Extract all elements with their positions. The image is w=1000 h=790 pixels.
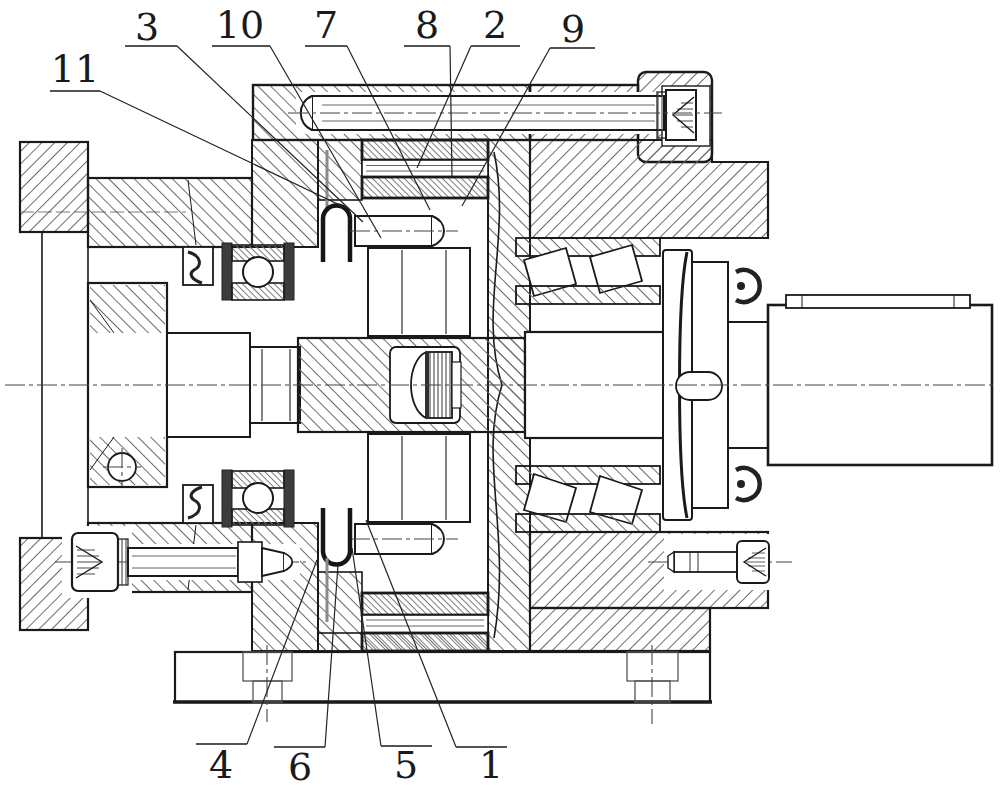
callout-number: 1 (479, 743, 503, 787)
left-end-cap-top (20, 142, 88, 232)
callout-number: 8 (415, 3, 439, 47)
taper-bearing-outer-race (516, 238, 660, 256)
output-shaft-group (768, 295, 992, 465)
callout-number: 10 (216, 3, 264, 47)
bolt-tip (262, 548, 284, 576)
callout-number: 2 (483, 3, 507, 47)
taper-bearing-outer-race (516, 514, 660, 532)
flange-section-hatch (90, 285, 165, 333)
mid-housing-wall-upper (252, 140, 318, 247)
chamber-shoulder-top (318, 140, 362, 200)
gear-rim-bottom (362, 633, 488, 651)
washer (657, 92, 666, 138)
callout-number: 9 (561, 7, 585, 51)
retainer-clip-top (323, 206, 350, 262)
bearing-shoulder-ring (222, 243, 232, 300)
bolt-collar (238, 542, 262, 582)
bolt-shank (128, 548, 238, 576)
gear-hub-bottom (362, 593, 488, 615)
taper-bearing-inner-race (516, 286, 660, 304)
washer (118, 539, 128, 585)
carrier-plate-lower (368, 434, 470, 522)
base-plate (175, 652, 710, 702)
right-bolt-group (648, 534, 792, 590)
seal-spring (737, 282, 745, 290)
bolt-tip (668, 552, 674, 572)
callout-number: 4 (209, 743, 233, 787)
seal-spring (737, 480, 745, 488)
bearing-shoulder-ring (222, 470, 232, 527)
shaft-key (786, 295, 970, 308)
callout-number: 3 (135, 5, 159, 49)
right-housing-bottom-band (530, 608, 710, 651)
bearing-shoulder-ring (284, 470, 294, 527)
retainer-clip-bottom (323, 508, 350, 565)
needle-bearing-band (362, 615, 488, 633)
needle-bearing-band (362, 160, 488, 177)
callout-number: 7 (314, 3, 338, 47)
gear-hub-top (362, 177, 488, 198)
bearing-ball (243, 483, 273, 513)
drawing-canvas: 1131078294651 (0, 0, 1000, 790)
bolt-shank (674, 552, 737, 572)
left-housing-upper-wall (88, 178, 252, 247)
callout-number: 6 (288, 745, 312, 789)
callout-number: 11 (51, 47, 99, 91)
carrier-plate-upper (368, 248, 470, 336)
callout-number: 5 (394, 743, 418, 787)
disc-center-slot (676, 372, 722, 400)
bearing-ball (243, 257, 273, 287)
bearing-shoulder-ring (284, 243, 294, 300)
patent-sectional-drawing: 1131078294651 (0, 0, 1000, 790)
right-housing-wall-upper (530, 140, 768, 238)
